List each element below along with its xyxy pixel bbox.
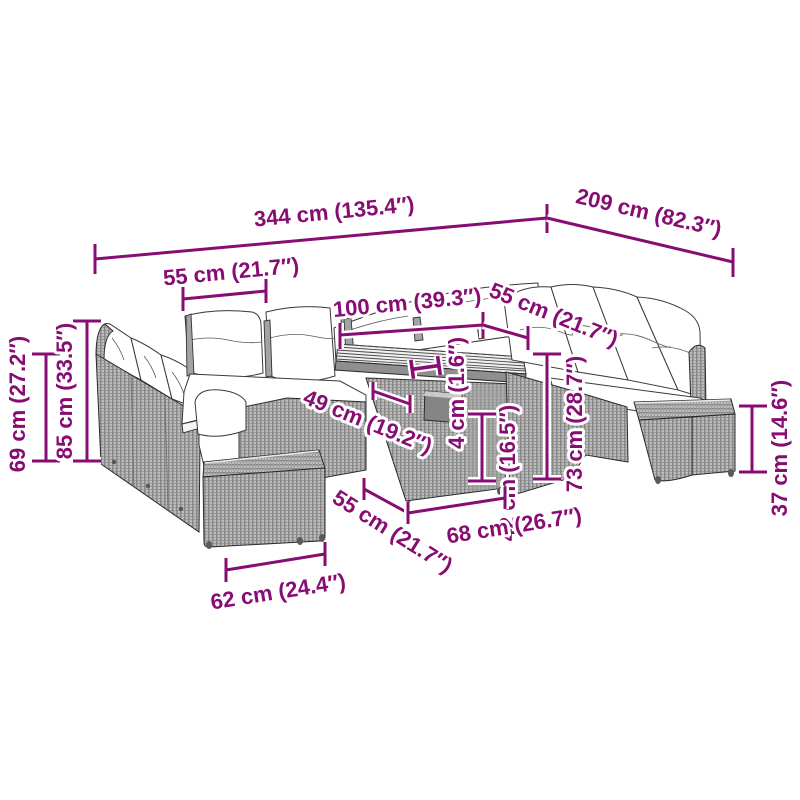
svg-text:37 cm (14.6″): 37 cm (14.6″) <box>767 380 792 517</box>
svg-text:69 cm (27.2″): 69 cm (27.2″) <box>5 336 30 473</box>
svg-text:73 cm (28.7″): 73 cm (28.7″) <box>562 356 587 493</box>
svg-text:85 cm (33.5″): 85 cm (33.5″) <box>52 323 77 460</box>
svg-text:4 cm (1.6″): 4 cm (1.6″) <box>444 337 469 449</box>
